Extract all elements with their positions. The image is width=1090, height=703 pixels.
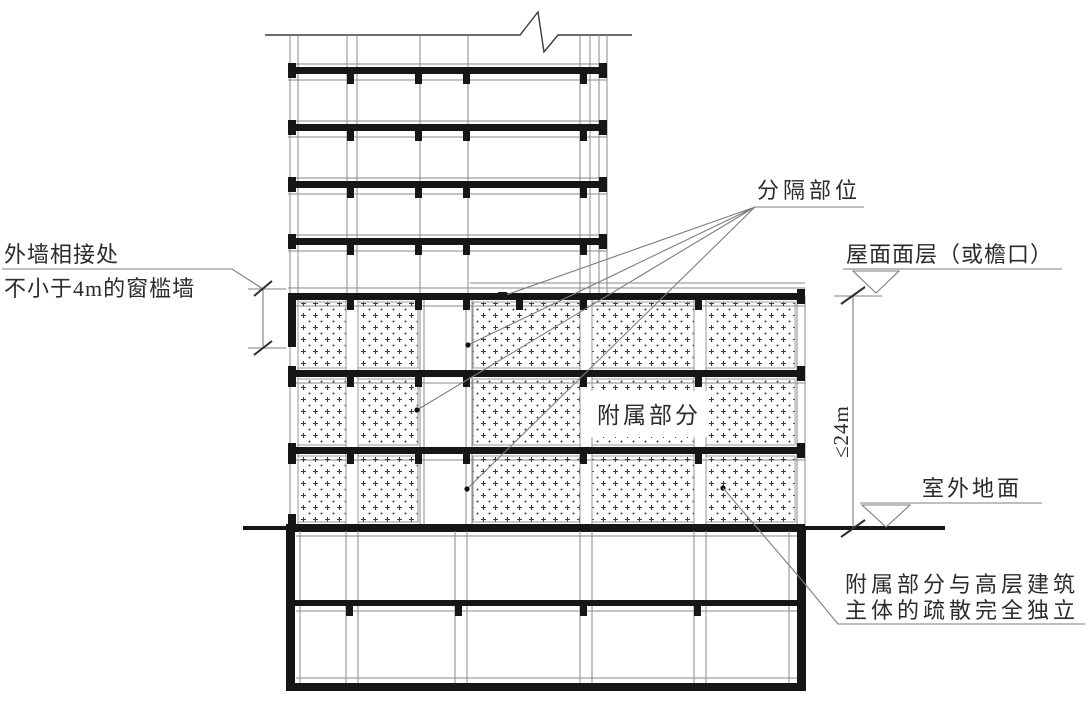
roof-finish-annotation: 屋面面层（或檐口） xyxy=(834,242,1062,296)
wall-junction-annotation: 外墙相接处 不小于4m的窗槛墙 xyxy=(2,242,286,355)
height-dimension-text: ≤24m xyxy=(829,405,853,458)
foundation-slab xyxy=(286,683,806,691)
tower-floor-lines xyxy=(288,64,607,251)
wall-junction-text-line1: 外墙相接处 xyxy=(4,242,119,267)
outdoor-ground-text: 室外地面 xyxy=(922,476,1022,501)
tower-structure xyxy=(265,12,632,293)
independence-text-line2: 主体的疏散完全独立 xyxy=(845,598,1079,623)
attached-part-text: 附属部分 xyxy=(597,403,701,428)
independence-text-line1: 附属部分与高层建筑 xyxy=(845,572,1079,597)
fire-wall-hatch-panels xyxy=(298,302,795,522)
basement-columns xyxy=(300,531,789,683)
outdoor-ground-annotation: 室外地面 xyxy=(860,476,1042,527)
podium-structure xyxy=(288,283,805,536)
tower-floor-slabs xyxy=(288,63,607,255)
roof-finish-text: 屋面面层（或檐口） xyxy=(846,242,1053,267)
wall-junction-text-line2: 不小于4m的窗槛墙 xyxy=(4,276,195,301)
basement-right-wall xyxy=(797,528,806,690)
height-dimension: ≤24m xyxy=(829,287,865,537)
spandrel-wall-fill xyxy=(288,293,296,347)
building-section-drawing: 附属部分 外墙相接处 不小于4m的窗槛墙 分隔部位 屋面面层（或檐口） ≤24m… xyxy=(0,0,1090,703)
basement-left-wall xyxy=(286,524,295,690)
basement-structure xyxy=(286,524,806,691)
separation-text: 分隔部位 xyxy=(757,178,861,203)
section-break-line xyxy=(265,12,632,52)
attached-part-label: 附属部分 xyxy=(591,391,707,437)
basement-floor-lines xyxy=(296,611,797,678)
architectural-section-diagram: 附属部分 外墙相接处 不小于4m的窗槛墙 分隔部位 屋面面层（或檐口） ≤24m… xyxy=(0,0,1090,703)
